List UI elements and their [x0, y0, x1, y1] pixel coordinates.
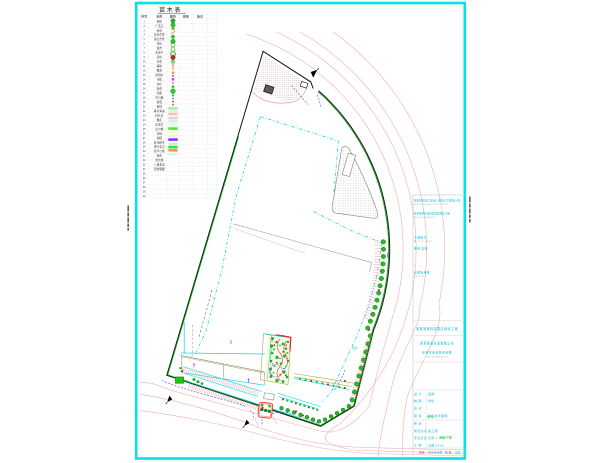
- svg-text:红叶李: 红叶李: [155, 113, 163, 117]
- svg-text:规格: 规格: [183, 14, 190, 19]
- svg-text:某某某某图: 某某某某图: [428, 451, 442, 455]
- svg-text:垂丝海棠: 垂丝海棠: [154, 109, 165, 113]
- svg-text:专业负责: 专业负责: [414, 435, 427, 440]
- svg-text:审 核: 审 核: [414, 413, 422, 418]
- svg-text:制 图: 制 图: [414, 398, 422, 403]
- svg-text:项目负责: 项目负责: [414, 428, 427, 433]
- svg-text:水杉: 水杉: [157, 82, 163, 86]
- svg-text:红枫: 红枫: [157, 91, 163, 95]
- svg-text:龙爪槐: 龙爪槐: [155, 127, 163, 131]
- svg-text:名称: 名称: [156, 14, 162, 19]
- svg-text:八角金盘: 八角金盘: [154, 163, 165, 167]
- svg-text:图别 园施: 图别 园施: [414, 246, 428, 250]
- svg-text:种植平面: 种植平面: [440, 435, 452, 440]
- svg-text:石楠: 石楠: [157, 131, 163, 135]
- svg-text:洒金珊瑚: 洒金珊瑚: [154, 167, 165, 171]
- svg-text:重阳木: 重阳木: [155, 73, 163, 77]
- svg-text:金丝桃: 金丝桃: [155, 158, 163, 162]
- svg-text:樱花: 樱花: [157, 118, 163, 122]
- svg-text:LANDSCAPE PLANTING PLAN: LANDSCAPE PLANTING PLAN: [414, 216, 435, 219]
- svg-text:审 定: 审 定: [414, 420, 422, 425]
- svg-text:图例: 图例: [170, 14, 176, 19]
- svg-text:合欢: 合欢: [157, 60, 163, 64]
- svg-text:绿 化: 绿 化: [427, 414, 434, 419]
- svg-text:桂花: 桂花: [157, 87, 163, 91]
- svg-text:某 某: 某 某: [445, 451, 452, 455]
- svg-text:序号: 序号: [141, 14, 147, 19]
- svg-text:鸡爪槭: 鸡爪槭: [155, 96, 163, 100]
- svg-text:园林: 园林: [428, 391, 435, 396]
- svg-text:杜鹃: 杜鹃: [157, 154, 163, 158]
- svg-text:2016.08: 2016.08: [414, 276, 425, 278]
- svg-text:银杏: 银杏: [157, 46, 163, 50]
- svg-text:香樟: 香樟: [157, 19, 163, 23]
- svg-text:备注: 备注: [197, 14, 203, 19]
- svg-text:紫薇: 紫薇: [157, 100, 163, 104]
- svg-text:白玉兰: 白玉兰: [155, 122, 163, 126]
- svg-text:某某市某某区某某路: 某某市某某区某某路: [422, 349, 452, 354]
- svg-text:金叶女贞: 金叶女贞: [154, 145, 165, 149]
- svg-text:红叶小檗: 红叶小檗: [154, 149, 165, 153]
- svg-text:广玉兰: 广玉兰: [155, 24, 163, 28]
- svg-text:设 计: 设 计: [414, 391, 422, 396]
- svg-text:紫荆: 紫荆: [157, 104, 163, 108]
- svg-text:乐昌含笑: 乐昌含笑: [154, 33, 165, 37]
- svg-text:无患子: 无患子: [155, 51, 163, 55]
- svg-text:出图专用章: 出图专用章: [414, 270, 430, 274]
- svg-text:杜英: 杜英: [157, 28, 163, 32]
- svg-text:校 对: 校 对: [414, 406, 422, 411]
- svg-text:SOME DESIGN INSTITUTE CO LTD A: SOME DESIGN INSTITUTE CO LTD ARCH: [414, 203, 448, 206]
- svg-text:苗木表: 苗木表: [159, 6, 182, 14]
- svg-text:红花继木: 红花继木: [154, 140, 165, 144]
- svg-text:深山含笑: 深山含笑: [154, 37, 165, 41]
- svg-text:PLANTING GENERAL PLAN: PLANTING GENERAL PLAN: [426, 355, 448, 358]
- svg-text:日期 2016: 日期 2016: [428, 443, 444, 448]
- svg-text:某某某某科技园区绿化工程: 某某某某科技园区绿化工程: [416, 326, 458, 331]
- svg-text:雪松: 雪松: [157, 42, 163, 46]
- svg-text:某某: 某某: [455, 451, 461, 455]
- svg-text:绿化: 绿化: [428, 398, 435, 403]
- svg-text:某某: 某某: [419, 451, 425, 455]
- svg-text:乌桕: 乌桕: [157, 78, 163, 82]
- svg-text:施工图: 施工图: [428, 428, 438, 433]
- svg-text:枫香: 枫香: [157, 69, 163, 73]
- svg-text:某某某某开发有限公司: 某某某某开发有限公司: [420, 340, 454, 345]
- svg-text:栾树: 栾树: [157, 55, 163, 59]
- svg-text:海桐: 海桐: [157, 136, 163, 140]
- svg-text:某某某某建设工程设计 有限公司 第某设计所: 某某某某建设工程设计 有限公司 第某设计所: [414, 197, 461, 202]
- svg-text:垂柳: 垂柳: [157, 64, 163, 68]
- svg-text:某某: 某某: [352, 346, 358, 350]
- svg-text:工 种: 工 种: [414, 443, 422, 448]
- svg-text:某某某某科技园区景观绿化工程: 某某某某科技园区景观绿化工程: [414, 210, 450, 215]
- svg-text:工程编号: 工程编号: [414, 236, 427, 240]
